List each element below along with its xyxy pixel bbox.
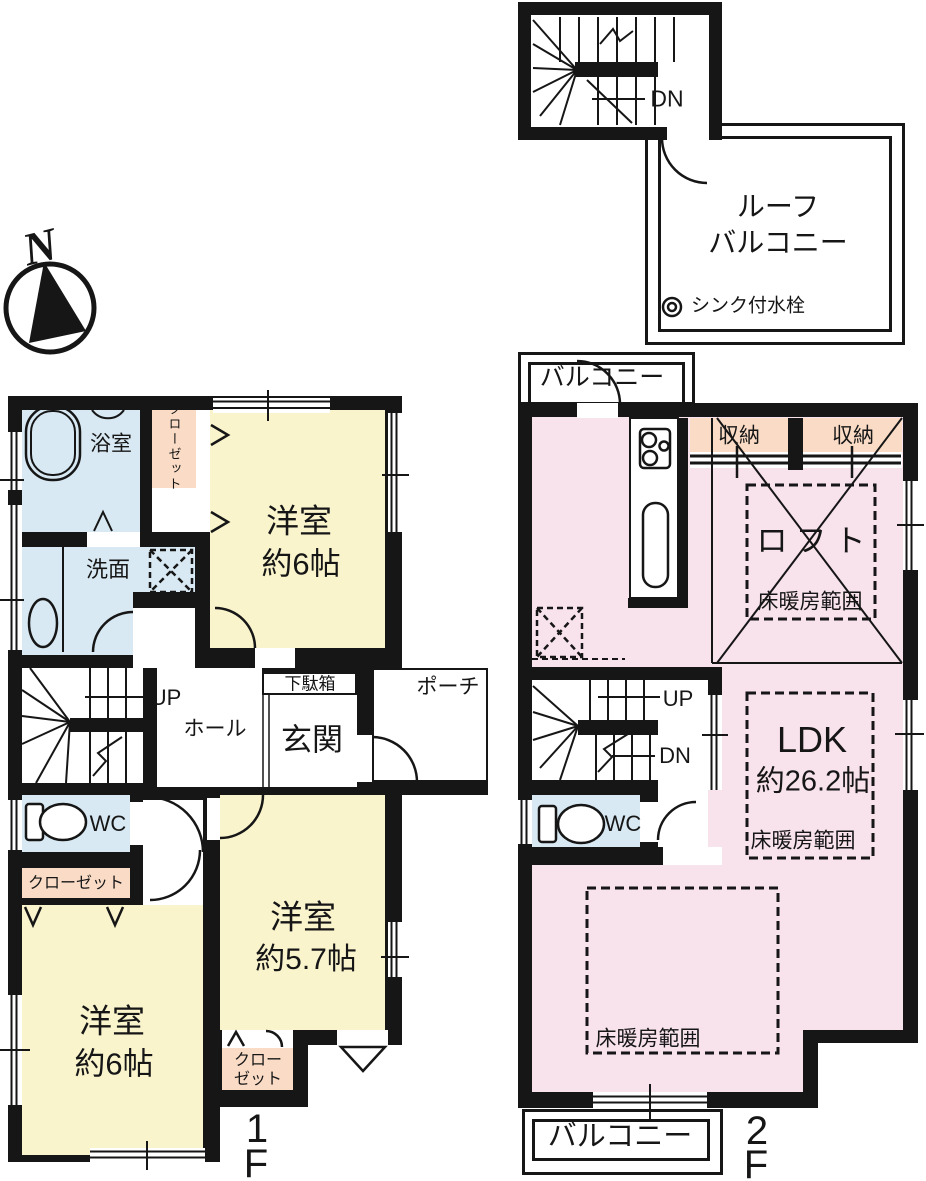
f1-corridor-upper: [133, 655, 195, 668]
f1-closet-west-label: クローゼット: [28, 876, 124, 892]
roof-balcony-label-1: ルーフ: [737, 193, 819, 221]
north-arrow-icon: [6, 262, 94, 352]
f1-room-sw-label: 洋室: [79, 1005, 145, 1038]
f1-wc-label: WC: [90, 813, 127, 835]
f1-bath-label: 浴室: [90, 434, 132, 455]
f2-balcony-top-label: バルコニー: [540, 366, 665, 391]
f2-wc-label: WC: [605, 813, 642, 835]
f1-closet-north-lower: [152, 488, 196, 532]
floorplan-canvas: N DN ルーフ バルコニー シンク付水栓 バルコニー 収納 収納 ロフト 床暖…: [0, 0, 926, 1181]
f1-bathroom: [22, 410, 140, 532]
f2-storage-left-label: 収納: [718, 426, 760, 447]
f2-kitchen-wall-bottom: [628, 598, 688, 608]
f1-entrance-door-gap: [357, 735, 372, 782]
f2-balcony-door-gap: [577, 403, 618, 418]
f2-heating-mid-label: 床暖房範囲: [751, 831, 856, 852]
roof-sink-label: シンク付水栓: [691, 297, 805, 316]
f2-storage-right-door: [803, 452, 902, 468]
f2-ldk-size-label: 約26.2帖: [756, 768, 870, 797]
f1-room-se-exit-arrow: [341, 1047, 385, 1071]
f1-closet-south-label-1: クロー: [234, 1053, 282, 1069]
f2-storage-right-label: 収納: [832, 426, 874, 447]
f1-room-ne-size: 約6帖: [261, 549, 340, 580]
f1-stairs-floor: [22, 668, 143, 783]
f2-stairs-floor: [532, 680, 658, 780]
f1-wc-door-gap: [130, 802, 143, 845]
f1-floor-letter: F: [244, 1144, 268, 1181]
roof-dn-label: DN: [650, 88, 683, 111]
f1-porch-label: ポーチ: [417, 677, 480, 698]
f2-heating-loft-label: 床暖房範囲: [758, 592, 863, 613]
north-label: N: [18, 221, 61, 274]
f1-bath-door-gap: [87, 532, 140, 547]
f1-washroom-label: 洗面: [86, 559, 130, 581]
f1-hall-label: ホール: [184, 719, 247, 740]
f2-storage-divider-wall: [788, 418, 803, 470]
f1-closet-north-label: クローゼット: [168, 402, 181, 492]
f1-room-se-door-gap: [207, 798, 220, 840]
f1-washroom-corridor: [133, 608, 195, 655]
f1-shoebox-label: 下駄箱: [285, 676, 336, 693]
f1-closet-south-doorstrip: [222, 1030, 293, 1048]
f2-wc-door-gap: [640, 802, 658, 842]
f2-stairblock-wall-top: [532, 667, 722, 680]
f1-corridor-south: [143, 800, 203, 905]
f2-wall-south: [532, 847, 663, 865]
f1-entrance-label: 玄関: [281, 725, 343, 756]
f2-dn-label: DN: [659, 745, 691, 767]
f2-storage-left-door: [690, 452, 788, 468]
f2-up-label: UP: [663, 688, 694, 710]
f2-floor-letter: F: [744, 1145, 768, 1181]
roof-balcony-label-2: バルコニー: [708, 229, 847, 257]
f2-ldk-label: LDK: [777, 722, 847, 758]
f2-kitchen-counter: [630, 418, 678, 598]
f2-loft-label: ロフト: [757, 526, 874, 557]
f1-room-ne-door-gap: [255, 648, 295, 668]
f2-stairs-wall-bottom: [532, 780, 658, 795]
f2-heating-south-label: 床暖房範囲: [596, 1029, 701, 1050]
f1-room-se-exit-gap: [337, 1030, 388, 1045]
f2-balcony-bottom-label: バルコニー: [548, 1123, 692, 1152]
roof-stairwell-opening: [667, 125, 709, 140]
f1-room-ne-label: 洋室: [266, 505, 332, 538]
f1-porch-wall-bottom: [372, 780, 488, 795]
f1-washroom-wall: [133, 592, 195, 608]
f2-corridor-opening: [663, 847, 722, 865]
f1-room-sw-size: 約6帖: [74, 1049, 153, 1080]
f1-up-label: UP: [151, 687, 182, 709]
f2-corridor-wall-right: [708, 667, 722, 695]
f1-closet-door-track: [196, 410, 210, 532]
f1-room-se-size: 約5.7帖: [255, 945, 357, 975]
f1-closet-south-label-2: ゼット: [234, 1072, 282, 1088]
f2-kitchen-wall-right: [678, 418, 688, 608]
f1-room-se-label: 洋室: [270, 901, 336, 934]
